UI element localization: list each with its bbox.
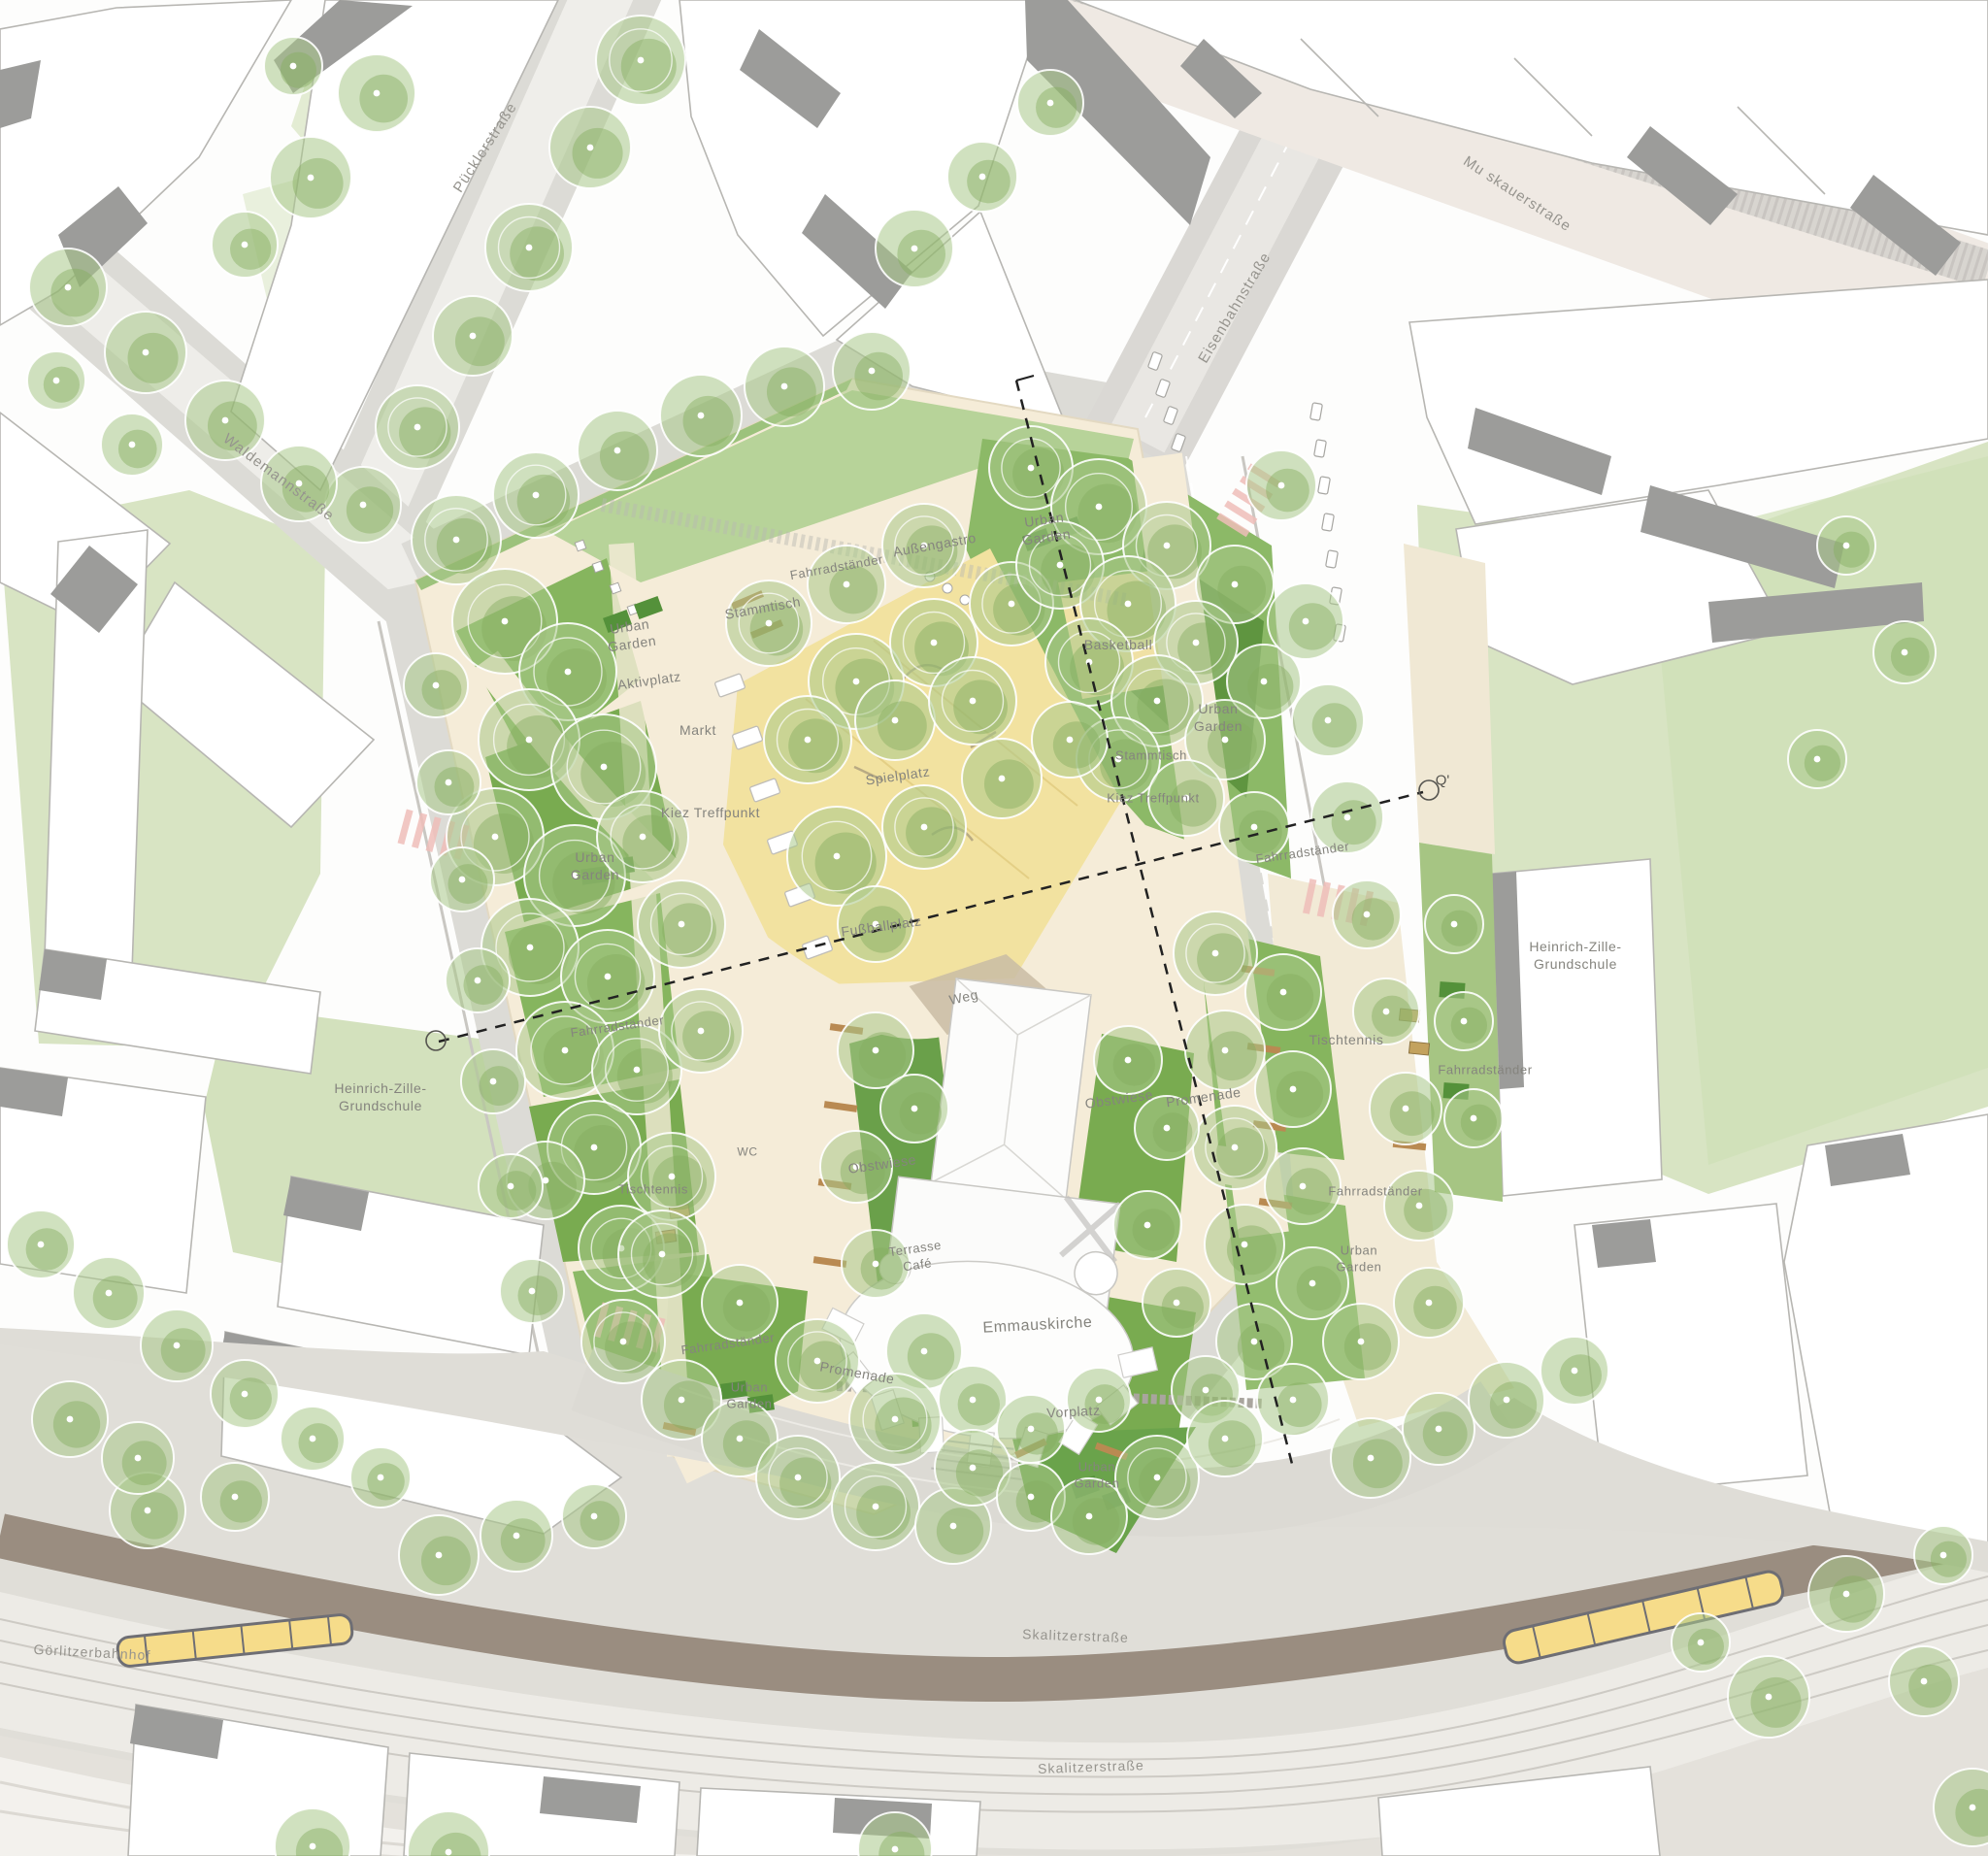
tree (32, 1381, 108, 1457)
tree (702, 1265, 778, 1341)
tree (597, 791, 688, 882)
tree (880, 1075, 948, 1143)
tree (1246, 450, 1316, 520)
tree (1067, 1368, 1131, 1432)
tree (1353, 978, 1419, 1044)
tree (1425, 895, 1483, 953)
tree (1333, 880, 1401, 948)
tree (1174, 911, 1257, 995)
tree (1331, 1418, 1410, 1498)
tree (842, 1230, 910, 1298)
parked-car (1326, 550, 1339, 568)
tree (461, 1049, 525, 1113)
tree (73, 1257, 145, 1329)
tree (1094, 1026, 1162, 1094)
tree (776, 1319, 859, 1403)
tree (185, 381, 265, 460)
tree (1889, 1646, 1959, 1716)
tree (618, 1210, 706, 1298)
tree (1245, 954, 1321, 1030)
tree (947, 142, 1017, 212)
tree (849, 1374, 941, 1465)
tree (578, 411, 657, 490)
tree (855, 680, 935, 760)
tree (433, 296, 513, 376)
tree (1788, 730, 1846, 788)
tree (1032, 702, 1108, 778)
tree (1257, 1364, 1329, 1436)
tree (1384, 1171, 1454, 1241)
tree (480, 1500, 552, 1572)
tree (1292, 684, 1364, 756)
tree (726, 580, 812, 666)
tree (1135, 1096, 1199, 1160)
tree (820, 1131, 892, 1203)
tree (1017, 70, 1083, 136)
tree (549, 107, 631, 188)
tree (281, 1407, 345, 1471)
tree (808, 546, 885, 623)
tree (141, 1309, 213, 1381)
tree (1268, 583, 1343, 659)
tree (1394, 1268, 1464, 1338)
tree (838, 886, 913, 962)
tree (211, 1360, 279, 1428)
tree (581, 1300, 665, 1383)
parked-car (1318, 477, 1331, 494)
tree (264, 37, 322, 95)
tree (1444, 1089, 1503, 1147)
tree (929, 657, 1016, 745)
tree (628, 1133, 715, 1220)
parked-car (1314, 440, 1327, 457)
tree (404, 653, 468, 717)
tree (1370, 1073, 1441, 1144)
tree (1255, 1051, 1331, 1127)
tree (882, 785, 966, 869)
tree (430, 847, 494, 911)
tree (1672, 1613, 1730, 1672)
tree (479, 1154, 543, 1218)
tree (1817, 516, 1875, 575)
tree (1808, 1556, 1884, 1632)
tree (1148, 760, 1224, 836)
tree (201, 1463, 269, 1531)
tree (493, 452, 579, 538)
tree (659, 989, 743, 1073)
tree (1219, 792, 1289, 862)
tree (1311, 781, 1383, 853)
tree (1323, 1304, 1399, 1379)
tree (1728, 1656, 1809, 1738)
tree (212, 212, 278, 278)
parked-car (1310, 403, 1323, 420)
tree (376, 385, 459, 469)
tree (1469, 1362, 1544, 1438)
tree (962, 739, 1042, 818)
tree (399, 1515, 479, 1595)
tree (101, 414, 163, 476)
tree (500, 1259, 564, 1323)
tree (833, 332, 911, 410)
tree (882, 504, 966, 587)
tree (446, 948, 510, 1012)
tree (764, 696, 851, 783)
tree (350, 1447, 411, 1508)
tree (1051, 1478, 1127, 1554)
tree (1113, 1191, 1181, 1259)
tree (1914, 1526, 1972, 1584)
tree (261, 446, 337, 521)
tree (1276, 1247, 1348, 1319)
cafe-table-round (943, 583, 952, 593)
tree (27, 351, 85, 410)
tree (270, 137, 351, 218)
tree (1143, 1269, 1210, 1337)
tree (745, 347, 824, 426)
tree (1435, 992, 1493, 1050)
tree (638, 880, 725, 968)
tree (338, 54, 415, 132)
tree (596, 16, 685, 105)
parked-car (1322, 514, 1335, 531)
tree (1873, 621, 1936, 683)
tree (1403, 1393, 1474, 1465)
site-plan: PücklerstraßeWaldemannstraßeMu skauerstr… (0, 0, 1988, 1856)
table-tennis-table (1408, 1042, 1429, 1055)
tree (876, 210, 953, 287)
tree (1265, 1148, 1341, 1224)
tree (7, 1210, 75, 1278)
plan-drawing (0, 0, 1988, 1856)
tree (660, 375, 742, 456)
tree (485, 204, 573, 291)
tree (562, 1484, 626, 1548)
tree (1115, 1436, 1199, 1519)
tree (756, 1436, 840, 1519)
tree (832, 1463, 919, 1550)
cafe-table-round (960, 595, 970, 605)
tree (105, 312, 186, 393)
tree (1187, 1401, 1263, 1476)
tree (416, 750, 480, 814)
tree (1193, 1106, 1276, 1189)
tree (1541, 1337, 1608, 1405)
tree (102, 1422, 174, 1494)
tree (1185, 1011, 1265, 1090)
tree (29, 249, 107, 326)
